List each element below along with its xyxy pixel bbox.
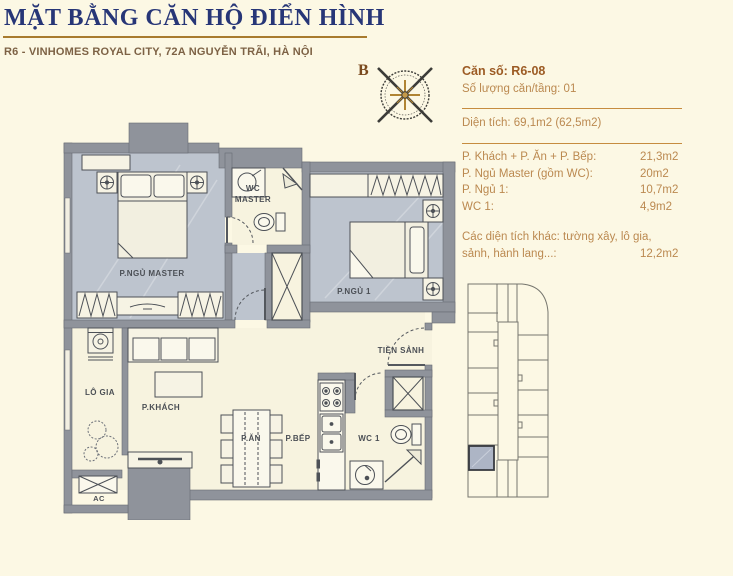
ac-unit (79, 476, 117, 493)
total-area: Diện tích: 69,1m2 (62,5m2) (462, 117, 601, 129)
divider (462, 143, 682, 144)
area-row: P. Ngủ Master (gồm WC): 20m2 (462, 168, 702, 183)
building-footprint-map (462, 280, 562, 502)
divider (462, 108, 682, 109)
unit-number: Căn số: R6-08 (462, 64, 545, 78)
room-label-bedroom-1: P.NGỦ 1 (337, 287, 371, 296)
page-subtitle: R6 - VINHOMES ROYAL CITY, 72A NGUYỄN TRÃ… (4, 46, 313, 58)
other-areas-line1: Các diện tích khác: tường xây, lô gia, (462, 231, 652, 243)
room-label-wc-master-1: WC (246, 184, 260, 193)
area-row: P. Ngủ 1: 10,7m2 (462, 184, 702, 199)
area-row-label: P. Ngủ Master (gồm WC): (462, 168, 593, 180)
room-label-wc-master-2: MASTER (235, 195, 271, 204)
room-label-hall: TIỀN SẢNH (378, 345, 425, 355)
room-label-loggia: LÔ GIA (85, 388, 115, 397)
area-row: WC 1: 4,9m2 (462, 201, 702, 216)
technical-shaft-1 (272, 253, 302, 320)
room-label-wc-1: WC 1 (358, 434, 380, 443)
area-row: P. Khách + P. Ăn + P. Bếp: 21,3m2 (462, 151, 702, 166)
other-areas-line2: sảnh, hành lang...: (462, 248, 557, 260)
apartment-floor-plan: P.NGỦ MASTER WC MASTER P.NGỦ 1 TIỀN SẢNH… (55, 110, 465, 520)
highlighted-unit (469, 446, 494, 470)
compass-north-label: B (358, 62, 369, 79)
units-per-floor: Số lượng căn/tầng: 01 (462, 83, 576, 95)
room-label-living: P.KHÁCH (142, 403, 180, 412)
room-kitchen (317, 380, 345, 490)
room-label-kitchen: P.BẾP (286, 433, 311, 443)
room-label-dining: P.ĂN (241, 434, 261, 443)
room-label-ac: AC (93, 494, 105, 503)
area-row-value: 21,3m2 (640, 151, 678, 163)
area-row-value: 4,9m2 (640, 201, 672, 213)
area-row-value: 20m2 (640, 168, 669, 180)
room-label-master-bedroom: P.NGỦ MASTER (119, 269, 184, 278)
floor-plan-page: { "header": { "title": "MẶT BẰNG CĂN HỘ … (0, 0, 733, 576)
area-row-label: WC 1: (462, 201, 494, 213)
room-dining (221, 410, 282, 487)
page-title: MẶT BẰNG CĂN HỘ ĐIỂN HÌNH (4, 5, 385, 32)
area-row-label: P. Ngủ 1: (462, 184, 508, 196)
title-underline (3, 36, 367, 38)
unit-info-panel: Căn số: R6-08 Số lượng căn/tầng: 01 Diện… (462, 60, 702, 275)
other-areas-value: 12,2m2 (640, 248, 678, 260)
technical-shaft-2 (393, 377, 423, 410)
area-row-label: P. Khách + P. Ăn + P. Bếp: (462, 151, 596, 163)
area-row-value: 10,7m2 (640, 184, 678, 196)
